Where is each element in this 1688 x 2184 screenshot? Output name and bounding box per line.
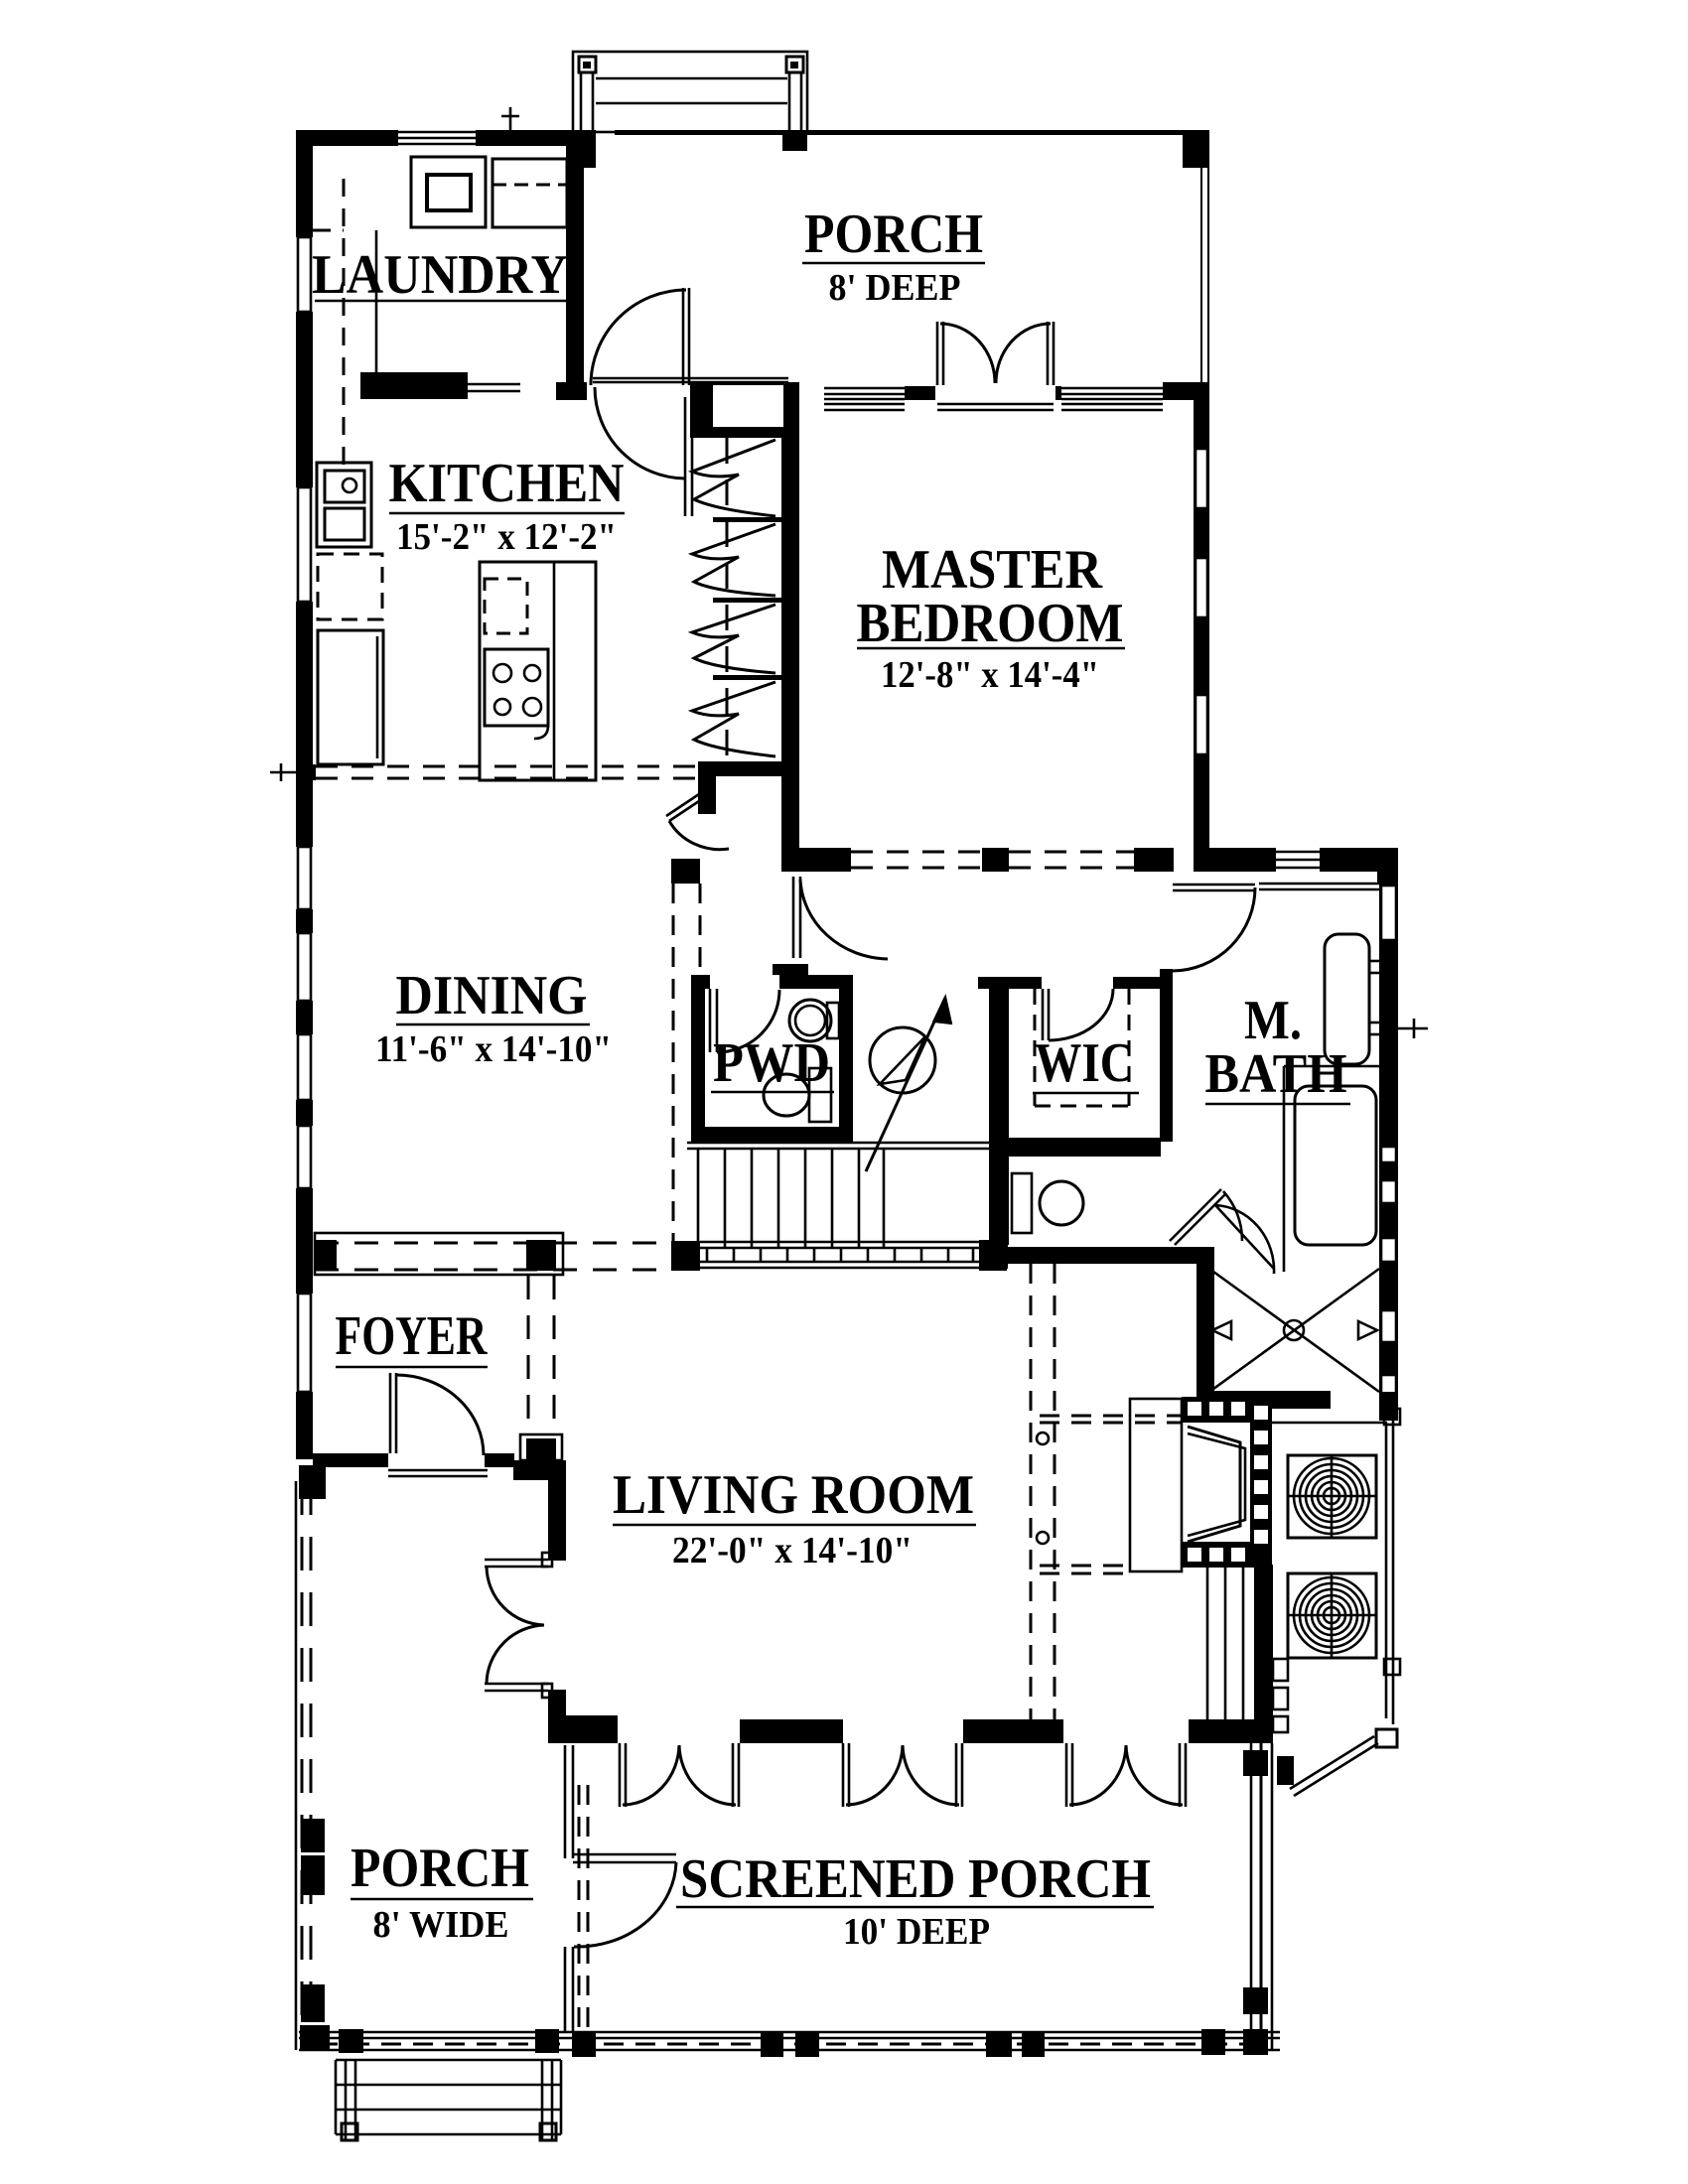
svg-text:KITCHEN: KITCHEN: [389, 453, 625, 514]
svg-text:8' WIDE: 8' WIDE: [373, 1904, 509, 1946]
svg-text:12'-8" x 14'-4": 12'-8" x 14'-4": [881, 654, 1099, 696]
svg-text:MASTER: MASTER: [882, 539, 1103, 601]
svg-text:BEDROOM: BEDROOM: [857, 593, 1124, 654]
svg-text:15'-2" x 12'-2": 15'-2" x 12'-2": [396, 516, 617, 558]
svg-text:M.: M.: [1244, 990, 1302, 1051]
svg-text:11'-6" x 14'-10": 11'-6" x 14'-10": [375, 1028, 612, 1070]
svg-text:PORCH: PORCH: [804, 204, 983, 265]
svg-text:SCREENED PORCH: SCREENED PORCH: [680, 1848, 1151, 1910]
svg-text:LAUNDRY: LAUNDRY: [312, 244, 568, 306]
svg-text:PWD: PWD: [713, 1032, 830, 1094]
svg-text:10' DEEP: 10' DEEP: [843, 1911, 990, 1953]
svg-text:PORCH: PORCH: [351, 1838, 529, 1899]
svg-text:DINING: DINING: [396, 965, 588, 1026]
svg-text:WIC: WIC: [1035, 1032, 1134, 1094]
svg-text:8' DEEP: 8' DEEP: [829, 267, 961, 309]
svg-text:LIVING ROOM: LIVING ROOM: [613, 1464, 974, 1526]
svg-text:22'-0" x 14'-10": 22'-0" x 14'-10": [672, 1530, 913, 1571]
svg-text:FOYER: FOYER: [336, 1305, 488, 1367]
